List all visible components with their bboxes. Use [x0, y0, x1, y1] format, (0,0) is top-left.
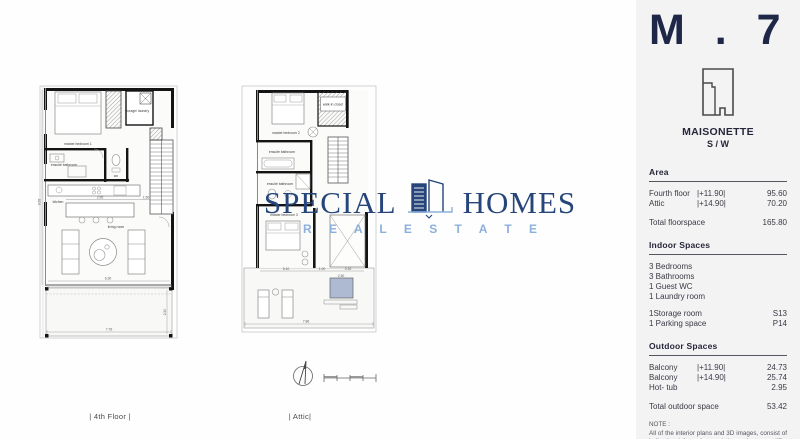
unit-number: M . 7 — [649, 4, 787, 56]
svg-text:walk-in closet: walk-in closet — [323, 103, 343, 107]
dim-label: 2.30 — [338, 274, 345, 278]
hot-tub — [330, 278, 353, 298]
storage-laundry-room — [126, 91, 153, 125]
dim-label: 2.50 — [163, 309, 167, 316]
special-homes-logo: SPECIAL HOMES R E A L E S T A T E — [262, 176, 578, 236]
area-row: Fourth floor |+11.90| 95.60 — [649, 189, 787, 199]
dim-label: 1.50 — [143, 196, 150, 200]
area-section: Area Fourth floor |+11.90| 95.60 Attic |… — [649, 167, 787, 228]
indoor-item: 1 Guest WC — [649, 282, 787, 292]
unit-type-line2: S / W — [649, 139, 787, 149]
toilet — [112, 155, 120, 166]
outdoor-row: Balcony |+14.90| 25.74 — [649, 373, 787, 383]
logo-word-homes: HOMES — [463, 186, 577, 220]
outdoor-spaces-section: Outdoor Spaces Balcony |+11.90| 24.73 Ba… — [649, 341, 787, 412]
dim-label: 6.30 — [105, 277, 112, 281]
staircase — [150, 128, 173, 214]
unit-footprint-icon — [697, 66, 739, 118]
dim-label: 7.76 — [106, 328, 113, 332]
room-label: ensuite bathroom — [51, 163, 77, 167]
caption-4th-floor: | 4th Floor | — [60, 412, 160, 421]
indoor-spaces-section: Indoor Spaces 3 Bedrooms 3 Bathrooms 1 G… — [649, 240, 787, 329]
parking-row: 1 Parking space P14 — [649, 319, 787, 329]
unit-type-line1: MAISONETTE — [649, 126, 787, 138]
bed — [272, 93, 304, 124]
room-label: master bedroom 2 — [272, 131, 300, 135]
scale-bar — [322, 372, 378, 384]
walk-in-closet: walk-in closet — [318, 91, 348, 126]
north-arrow-icon — [288, 358, 320, 392]
unit-info-sidebar: M . 7 MAISONETTE S / W Area Fourth floor… — [636, 0, 800, 439]
outdoor-row: Hot- tub 2.95 — [649, 383, 787, 393]
buildings-icon — [404, 176, 456, 220]
dim-label: 1.00 — [319, 267, 326, 271]
area-heading: Area — [649, 167, 787, 182]
caption-attic: | Attic| — [268, 412, 332, 421]
round-table — [90, 239, 117, 266]
kitchen-island — [66, 203, 134, 217]
dim-label: 2.95 — [97, 196, 104, 200]
indoor-item: 3 Bedrooms — [649, 262, 787, 272]
room-label: living room — [108, 225, 125, 229]
logo-word-special: SPECIAL — [264, 186, 397, 220]
outdoor-spaces-heading: Outdoor Spaces — [649, 341, 787, 356]
indoor-item: 1 Laundry room — [649, 292, 787, 302]
unit-type: MAISONETTE S / W — [649, 126, 787, 149]
note-body: All of the interior plans and 3D images,… — [649, 430, 787, 439]
dim-label: 7.86 — [303, 320, 310, 324]
dim-label: 9.55 — [38, 199, 42, 206]
total-outdoor-row: Total outdoor space 53.42 — [649, 402, 787, 412]
outdoor-row: Balcony |+11.90| 24.73 — [649, 363, 787, 373]
floorplan-4th-floor: storage/ laundry master bedroom 1 ensuit… — [36, 82, 184, 344]
area-row: Attic |+14.90| 70.20 — [649, 199, 787, 209]
floorplan-sheet: storage/ laundry master bedroom 1 ensuit… — [0, 0, 800, 439]
room-label: storage/ laundry — [125, 109, 150, 113]
total-floorspace-row: Total floorspace 165.80 — [649, 218, 787, 228]
room-label: master bedroom 1 — [64, 142, 92, 146]
note-heading: NOTE : — [649, 421, 787, 428]
disclaimer-note: NOTE : All of the interior plans and 3D … — [649, 421, 787, 439]
indoor-item: 3 Bathrooms — [649, 272, 787, 282]
room-label: wc — [114, 174, 118, 178]
bed — [55, 92, 101, 134]
logo-tagline: R E A L E S T A T E — [262, 222, 578, 236]
bathtub — [262, 158, 294, 169]
storage-row: 1Storage room S13 — [649, 309, 787, 319]
indoor-spaces-heading: Indoor Spaces — [649, 240, 787, 255]
room-label: kitchen — [53, 200, 64, 204]
wardrobe — [106, 91, 121, 128]
room-label: ensuite bathroom — [269, 150, 295, 154]
dim-label: 2.10 — [345, 267, 352, 271]
dim-label: 5.10 — [283, 267, 290, 271]
